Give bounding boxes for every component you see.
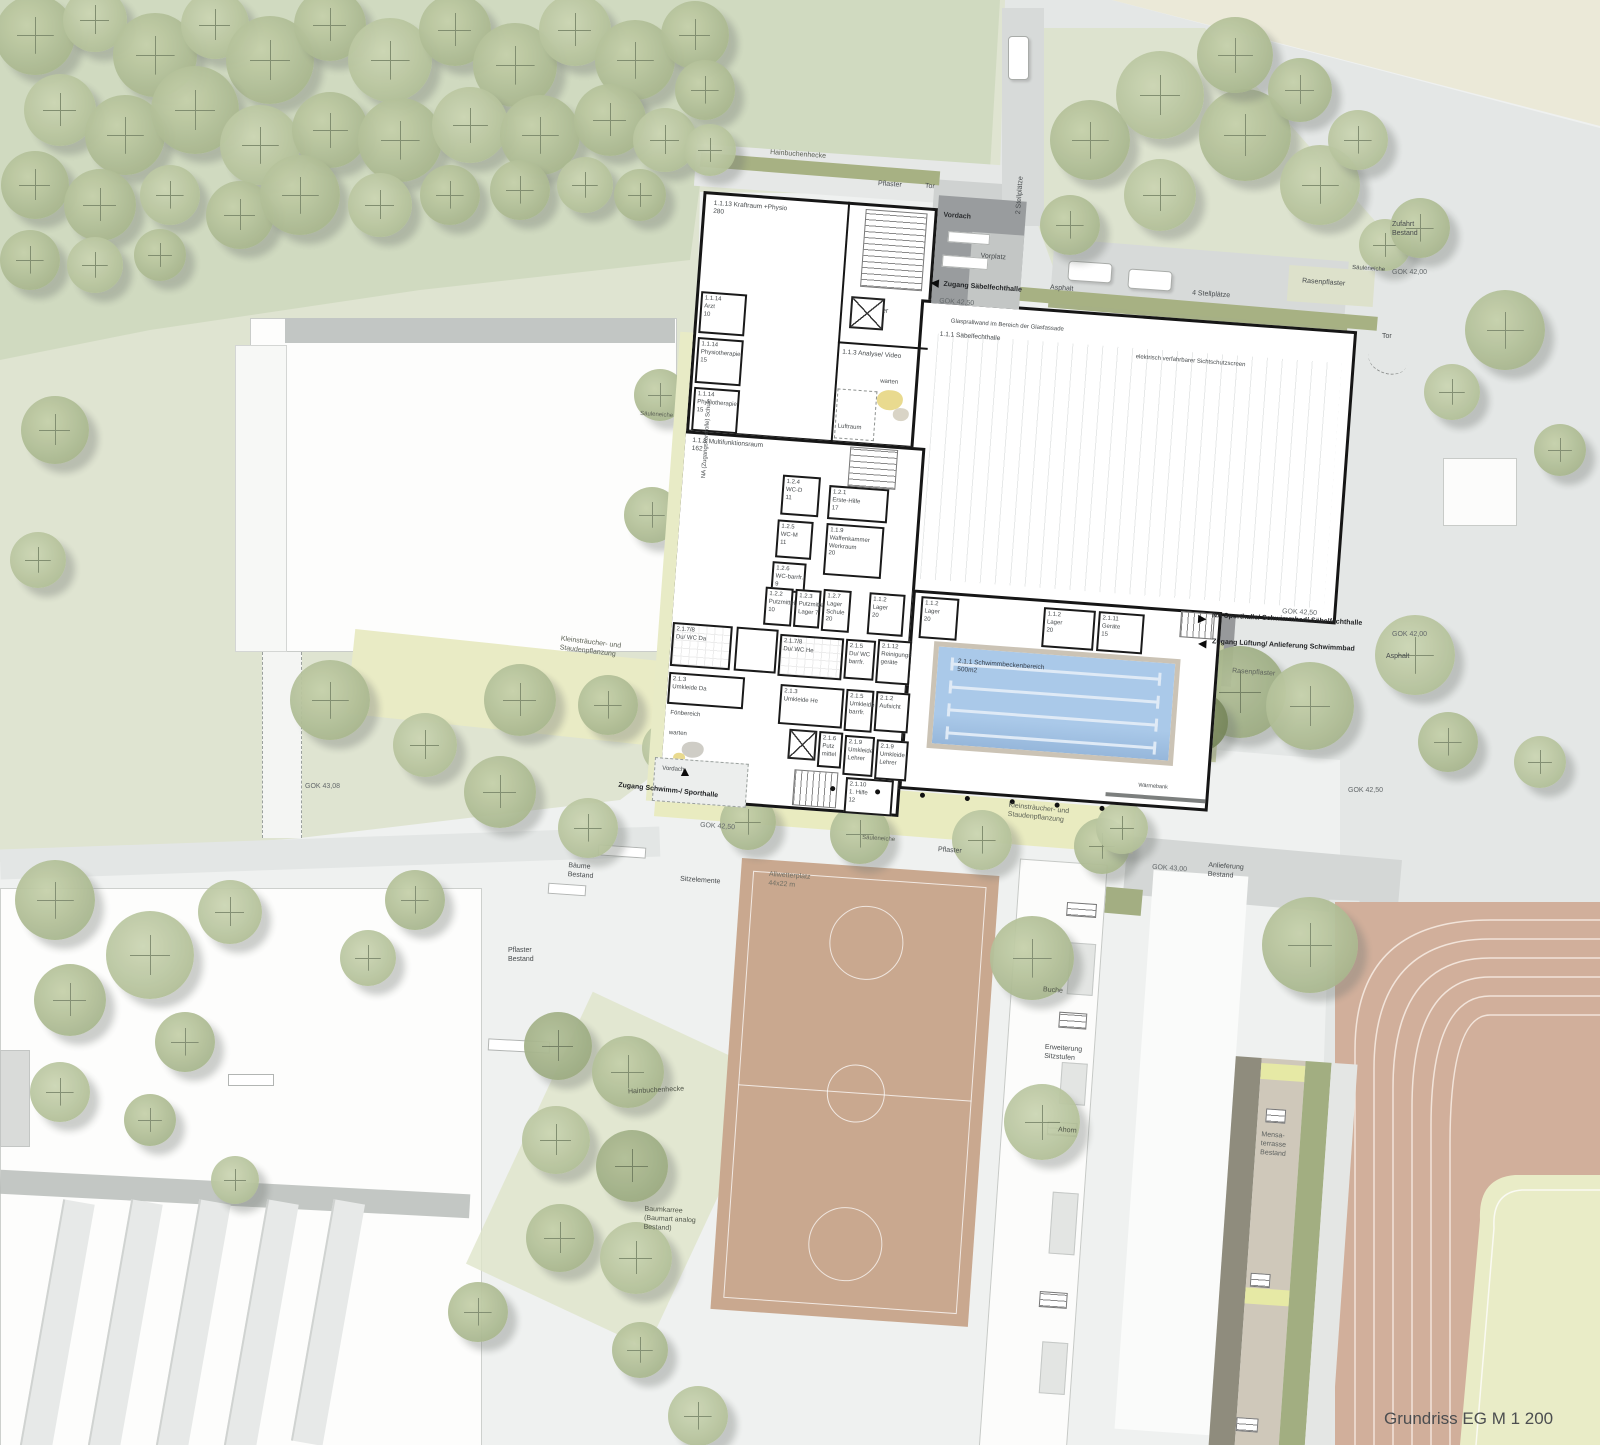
room-geraete: 2.1.11 Geräte 15 [1096,611,1145,654]
vordach-ne [931,195,1027,309]
elevator [787,729,817,761]
tree-canopy [990,916,1074,1000]
room-arzt: 1.1.14 Arzt 10 [698,291,747,336]
room-duwc-barr: 2.1.5 Du/ WC barrfr. [843,639,876,681]
tree-canopy [448,1282,508,1342]
tree-canopy [668,1386,728,1445]
room-lager-3: 1.1.2 Lager 20 [1041,607,1096,651]
tree-canopy [348,173,412,237]
room-lehrer-2: 2.1.9 Umkleide Lehrer [874,739,909,781]
tree-canopy [614,169,666,221]
tree-canopy [612,1322,668,1378]
tree-canopy [1197,17,1273,93]
tree-canopy [1514,736,1566,788]
bench [942,255,989,270]
room-lager-2: 1.1.2 Lager 20 [918,596,959,641]
tree-canopy [34,964,106,1036]
entrance-arrow-lueftung: ◀ [1198,639,1207,650]
tree-canopy [661,1,729,69]
tree-canopy [1328,110,1388,170]
tree-canopy [1268,58,1332,122]
column-dot [920,793,925,798]
tree-canopy [1004,1084,1080,1160]
room-aufsicht: 2.1.2 Aufsicht [874,691,911,733]
tree-canopy [10,532,66,588]
tree-canopy [260,155,340,235]
room-lager-schule: 1.2.7 Lager Schule 20 [821,589,852,633]
bench [948,231,991,245]
tree-canopy [558,798,618,858]
pool-lane-line [947,708,1158,726]
room-erste-hilfe-sw: 2.1.10 1. Hilfe 12 [843,777,894,816]
tree-canopy [155,1012,215,1072]
room-duwc-da: 2.1.7/8 Du/ WC Da [670,622,733,670]
tree-canopy [21,396,89,464]
tree-canopy [106,911,194,999]
entrance-arrow-saebel: ◀ [930,278,939,290]
room-umkleide-da: 2.1.3 Umkleide Da [667,672,745,709]
piste-stripes [920,334,1342,609]
tree-canopy [1465,290,1545,370]
tree-canopy [211,1156,259,1204]
pool-lane-line [946,731,1157,749]
tree-canopy [432,87,508,163]
room-putzmittel6: 2.1.6 Putz mittel [817,731,844,769]
tree-canopy [1116,51,1204,139]
tree-canopy [124,1094,176,1146]
stair-foyer [860,209,928,291]
room-duwc-he: 2.1.7/8 Du/ WC He [777,634,844,681]
tree-canopy [30,1062,90,1122]
tree-canopy [393,713,457,777]
room-waffenkammer: 1.1.9 Waffenkammer Werkraum 20 [823,523,885,579]
room-lager-1: 1.1.2 Lager 20 [867,592,906,637]
tree-canopy [1534,424,1586,476]
tree-canopy [1,151,69,219]
column-dot [965,796,970,801]
site-plan: Allwetterplatz 44x22 m Erweiterung Sitzs… [0,0,1600,1445]
tree-canopy [1262,897,1358,993]
tree-canopy [524,1012,592,1080]
tree-canopy [340,930,396,986]
tree-canopy [198,880,262,944]
stair [847,446,898,489]
stair [1179,611,1215,639]
room-reinigung: 2.1.12 Reinigungs geräte [875,639,912,685]
tree-canopy [596,1130,668,1202]
room-phys1: 1.1.14 Physiotherapie 15 [695,337,744,386]
tree-canopy [15,860,95,940]
pool-lane-line [951,662,1162,680]
tree-canopy [1375,615,1455,695]
pool-lane-line [949,685,1160,703]
tree-canopy [1050,100,1130,180]
room-lehrer-1: 2.1.9 Umkleide Lehrer [842,735,875,777]
room-phys2: 1.1.14 Physiotherapie 15 [691,387,740,434]
tree-canopy [358,98,442,182]
tree-canopy [1418,712,1478,772]
tree-canopy [385,870,445,930]
swimming-pool: 2.1.1 Schwimmbeckenbereich 500m2 [926,641,1180,766]
tree-canopy [67,237,123,293]
tree-canopy [420,165,480,225]
tree-canopy [0,230,60,290]
tree-canopy [578,675,638,735]
tree-canopy [490,160,550,220]
column-dot [1010,799,1015,804]
tree-canopy [1424,364,1480,420]
room-putzmittel10: 1.2.2 Putzmittel 10 [763,587,794,627]
room-wcd: 1.2.4 WC-D 11 [780,475,821,518]
tree-canopy [522,1106,590,1174]
tree-canopy [64,169,136,241]
room-putzmittel-lager: 1.2.3 Putzmittel Lager 7 [793,589,822,629]
column-dot [1099,806,1104,811]
tree-canopy [675,60,735,120]
exit-arrow-east: ▶ [1198,614,1207,625]
tree-canopy [134,229,186,281]
tree-canopy [290,660,370,740]
tree-canopy [1390,198,1450,258]
tree-canopy [526,1204,594,1272]
room-umkleide-barr: 2.1.5 Umkleide barrfr. [843,689,874,733]
tree-canopy [557,157,613,213]
tree-canopy [464,756,536,828]
entrance-arrow-schwimm: ▲ [678,764,692,778]
luftraum-box [834,388,878,441]
tree-canopy [600,1222,672,1294]
tree-canopy [592,1036,664,1108]
room-erstehilfe: 1.2.1 Erste-Hilfe 17 [827,485,889,523]
column-dot [1054,802,1059,807]
elevator [849,296,885,330]
label-glasprallwand: Glasprallwand im Bereich der Glasfassade [950,319,1064,335]
vordach-sued [652,757,749,808]
tree-canopy [684,124,736,176]
tree-canopy [140,165,200,225]
room-umkleide-he: 2.1.3 Umkleide He [778,684,845,729]
building-complex: Glasprallwand im Bereich der Glasfassade… [640,172,1388,901]
tree-canopy [484,664,556,736]
room-small [734,627,779,674]
fencing-hall: Glasprallwand im Bereich der Glasfassade… [900,299,1357,624]
room-wcm: 1.2.5 WC-M 11 [775,519,814,560]
